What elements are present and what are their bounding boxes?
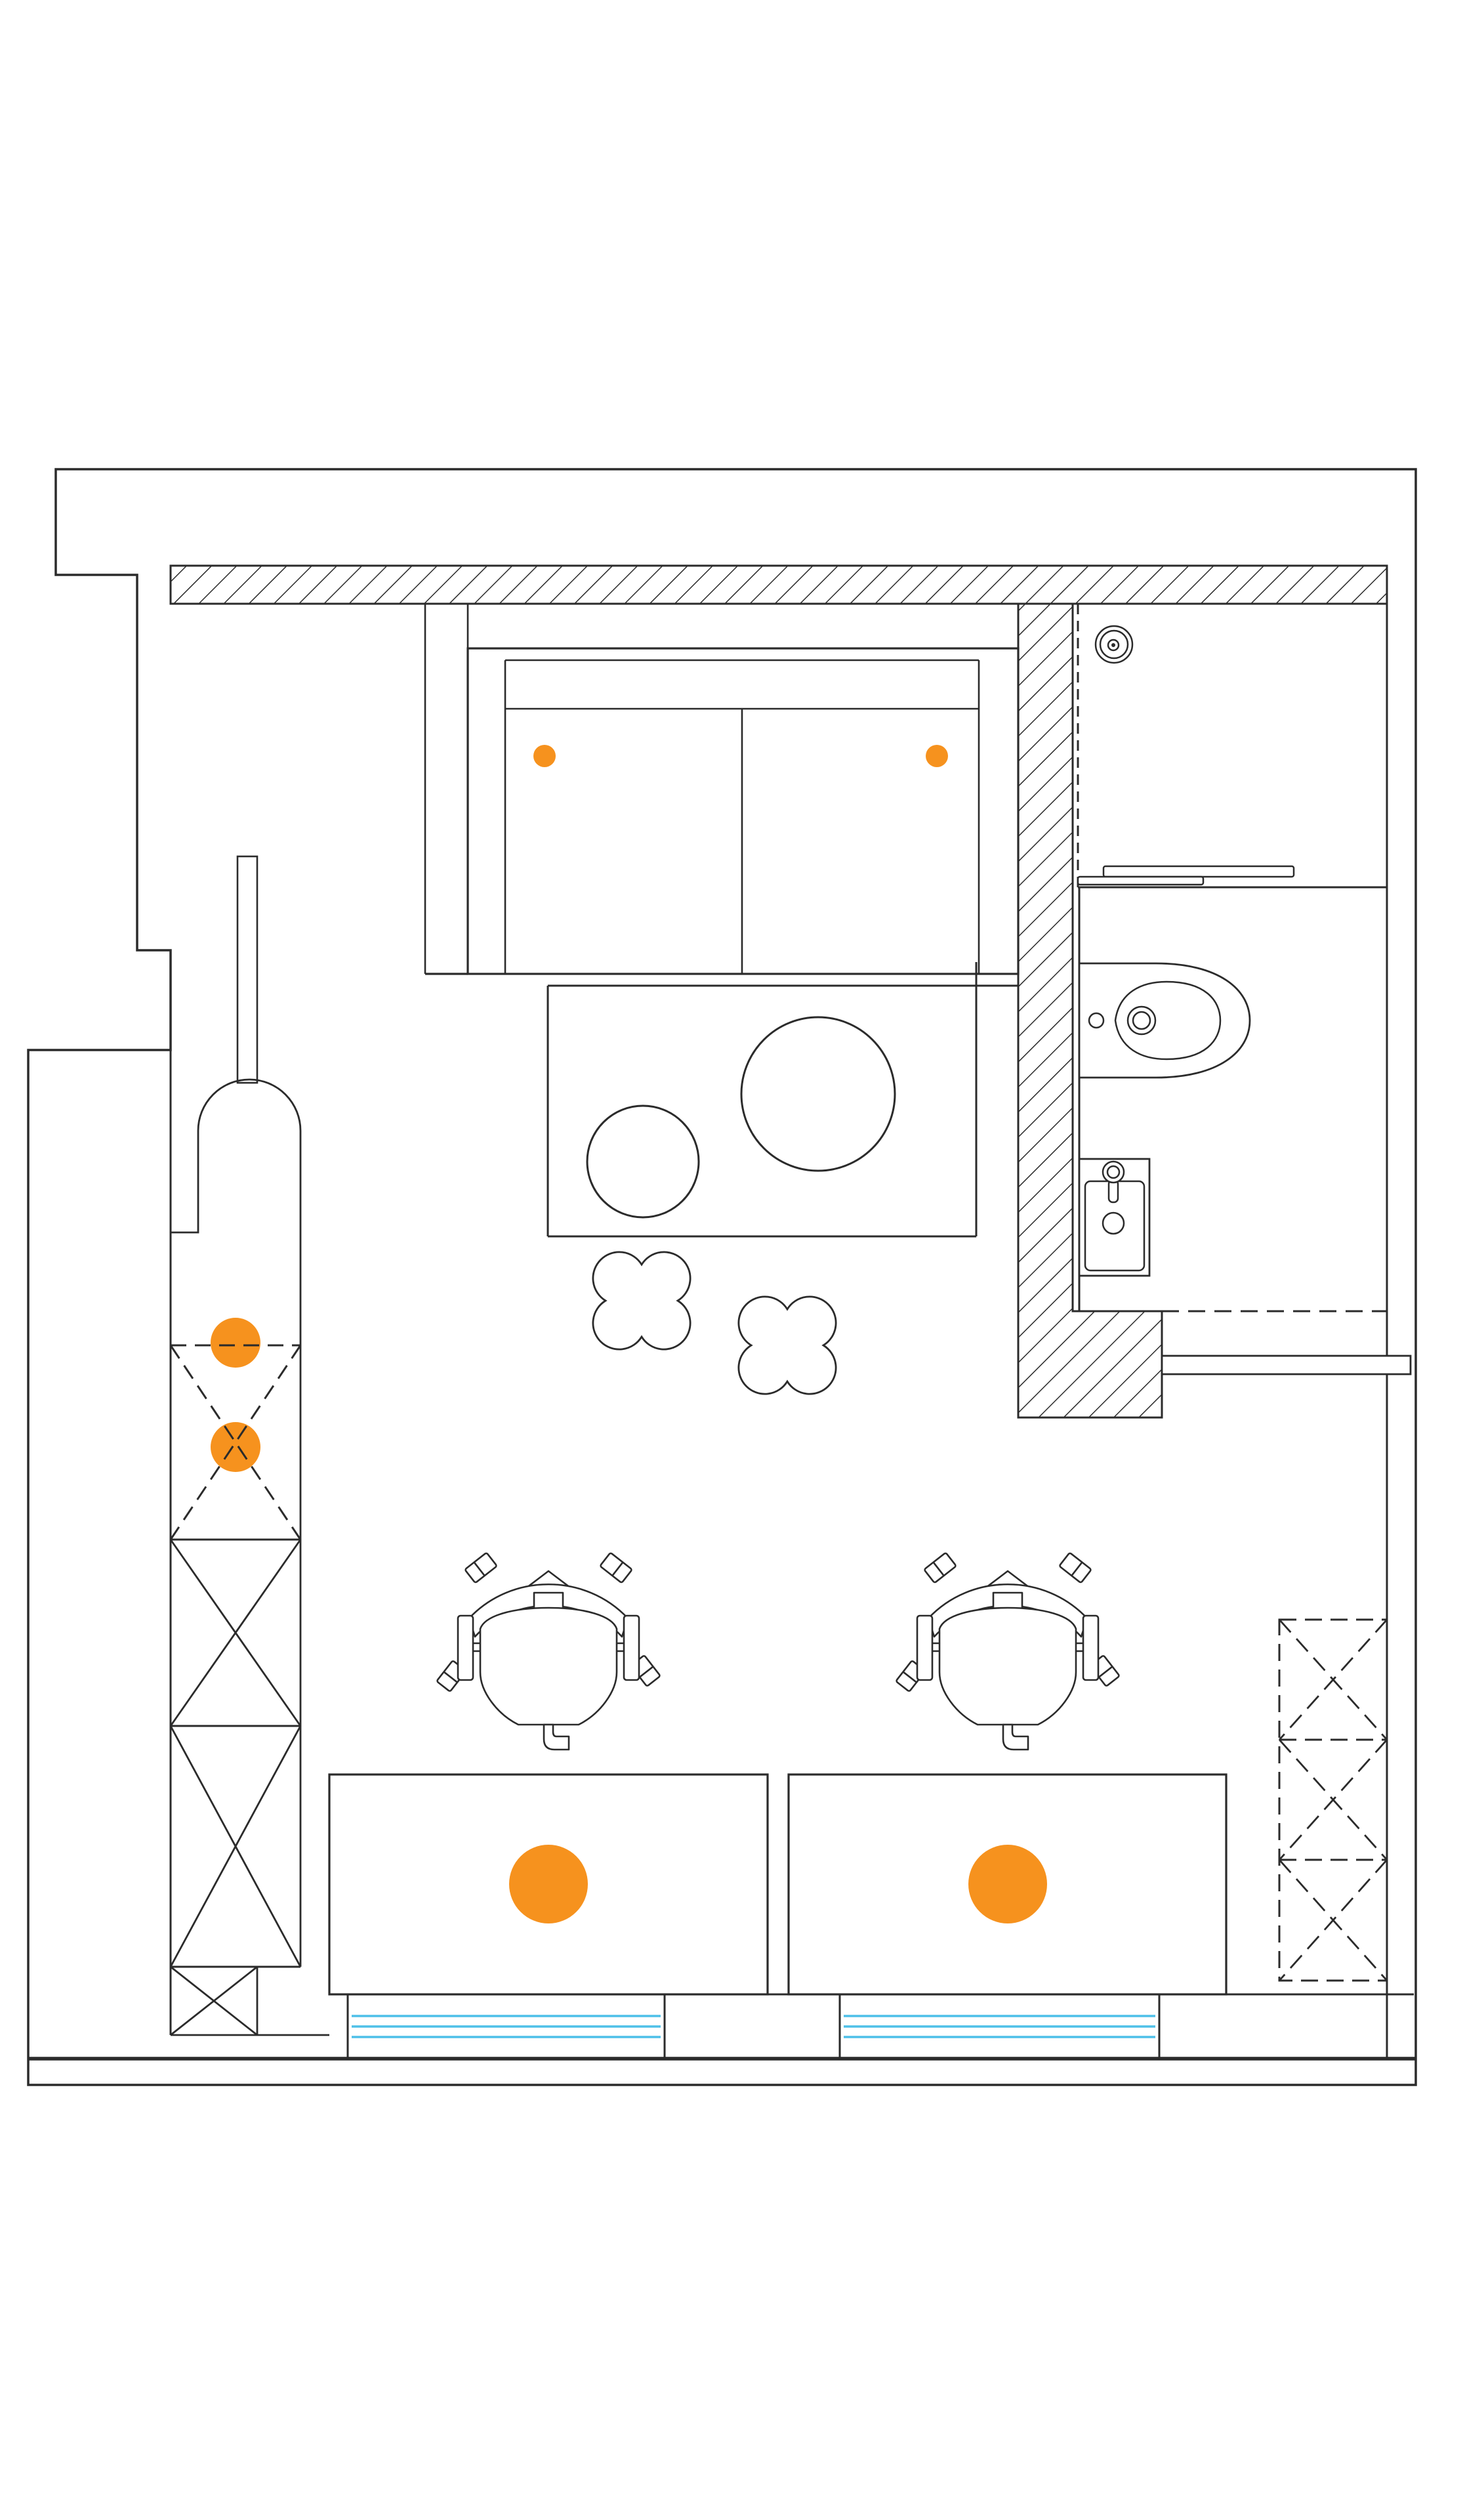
- swivel-chair-1: [436, 1553, 660, 1750]
- x-cell-upper: [171, 1540, 300, 1726]
- window-wall: [28, 1994, 1416, 2059]
- wall-shelf: [1078, 866, 1294, 885]
- washbasin: [1079, 1159, 1149, 1276]
- clover-stool-1: [593, 1252, 690, 1349]
- desk2-marker: [968, 1845, 1047, 1923]
- x-cell-narrow-bottom: [171, 1967, 329, 2035]
- arched-cabinet-end: [171, 1080, 300, 1967]
- round-seat-small: [587, 1106, 699, 1217]
- clover-stool-2: [739, 1297, 836, 1394]
- bidet: [1079, 963, 1250, 1078]
- shower-screen: [1162, 1311, 1411, 1374]
- drain-icon: [1103, 1213, 1124, 1234]
- x-cell-lower: [171, 1726, 300, 1967]
- bed-marker-right: [926, 745, 948, 767]
- floor-plan-svg: [0, 0, 1465, 2520]
- window-glazing-lines: [352, 2016, 1155, 2037]
- outer-boundary: [28, 469, 1416, 2085]
- floor-plan-page: [0, 0, 1465, 2520]
- ceiling-drain-icon: [1096, 626, 1132, 663]
- double-bed: [425, 604, 1018, 974]
- hatched-wall-top: [171, 566, 1387, 604]
- faucet-icon: [1103, 1162, 1124, 1183]
- bed-marker-left: [533, 745, 556, 767]
- desk1-marker: [509, 1845, 588, 1923]
- table-unit: [548, 962, 1018, 1236]
- dashed-storage-cabinet: [1279, 1620, 1387, 1981]
- wardrobe-marker-low: [211, 1422, 260, 1472]
- swivel-chair-2: [896, 1553, 1119, 1750]
- wardrobe-marker-top: [211, 1318, 260, 1368]
- round-seat-large: [741, 1017, 895, 1171]
- door-leaf: [237, 856, 257, 1083]
